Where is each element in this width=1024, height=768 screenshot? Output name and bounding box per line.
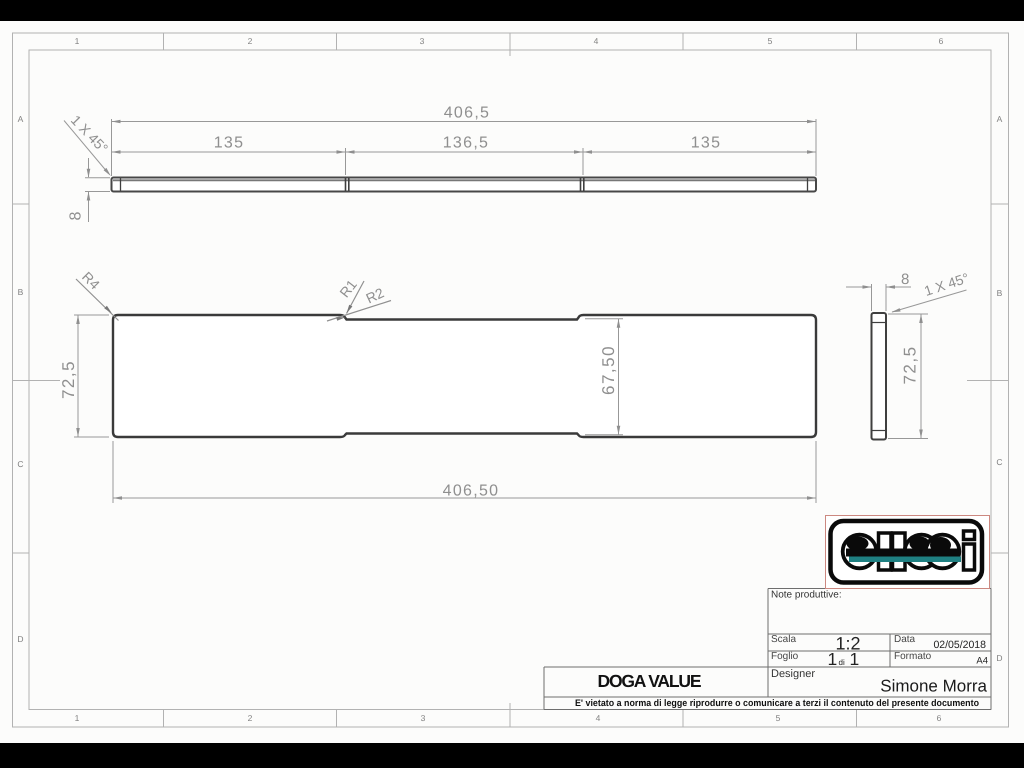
svg-text:1 X 45°: 1 X 45° xyxy=(922,270,971,299)
svg-text:DOGA VALUE: DOGA VALUE xyxy=(598,671,702,691)
svg-text:6: 6 xyxy=(937,713,942,723)
svg-text:Formato: Formato xyxy=(894,651,932,662)
svg-text:135: 135 xyxy=(691,135,722,152)
svg-text:C: C xyxy=(996,457,1002,467)
svg-text:5: 5 xyxy=(768,36,773,46)
svg-text:1 X 45°: 1 X 45° xyxy=(68,112,112,156)
svg-text:4: 4 xyxy=(596,713,601,723)
svg-text:Simone Morra: Simone Morra xyxy=(880,677,987,696)
svg-text:Data: Data xyxy=(894,634,916,645)
svg-text:8: 8 xyxy=(901,271,909,288)
svg-text:E' vietato a norma di legge ri: E' vietato a norma di legge riprodurre o… xyxy=(575,698,979,709)
svg-text:3: 3 xyxy=(421,713,426,723)
svg-text:R1: R1 xyxy=(336,276,360,300)
svg-text:6: 6 xyxy=(939,36,944,46)
svg-text:C: C xyxy=(17,459,23,469)
svg-text:D: D xyxy=(996,653,1002,663)
svg-text:2: 2 xyxy=(248,36,253,46)
svg-text:di: di xyxy=(839,658,845,667)
svg-text:R4: R4 xyxy=(79,268,103,292)
svg-text:Foglio: Foglio xyxy=(771,651,799,662)
svg-text:Designer: Designer xyxy=(771,668,815,680)
svg-text:8: 8 xyxy=(68,211,85,220)
svg-text:406,50: 406,50 xyxy=(443,483,500,500)
svg-text:406,5: 406,5 xyxy=(444,105,491,122)
svg-text:A4: A4 xyxy=(976,656,988,667)
svg-text:72,5: 72,5 xyxy=(59,360,78,399)
svg-text:A: A xyxy=(18,114,24,124)
svg-text:B: B xyxy=(997,288,1003,298)
svg-text:2: 2 xyxy=(248,713,253,723)
svg-text:Note produttive:: Note produttive: xyxy=(771,590,842,601)
svg-text:3: 3 xyxy=(420,36,425,46)
svg-text:1: 1 xyxy=(828,649,838,669)
svg-text:5: 5 xyxy=(776,713,781,723)
svg-text:67,50: 67,50 xyxy=(599,345,618,395)
svg-text:136,5: 136,5 xyxy=(443,135,490,152)
svg-text:02/05/2018: 02/05/2018 xyxy=(933,639,986,651)
svg-text:1: 1 xyxy=(75,713,80,723)
svg-text:Scala: Scala xyxy=(771,634,796,645)
svg-text:A: A xyxy=(997,114,1003,124)
svg-text:D: D xyxy=(17,634,23,644)
svg-text:B: B xyxy=(18,287,24,297)
svg-text:72,5: 72,5 xyxy=(901,345,920,384)
svg-text:135: 135 xyxy=(214,135,245,152)
svg-text:1: 1 xyxy=(75,36,80,46)
svg-text:1: 1 xyxy=(850,649,860,669)
svg-text:4: 4 xyxy=(594,36,599,46)
